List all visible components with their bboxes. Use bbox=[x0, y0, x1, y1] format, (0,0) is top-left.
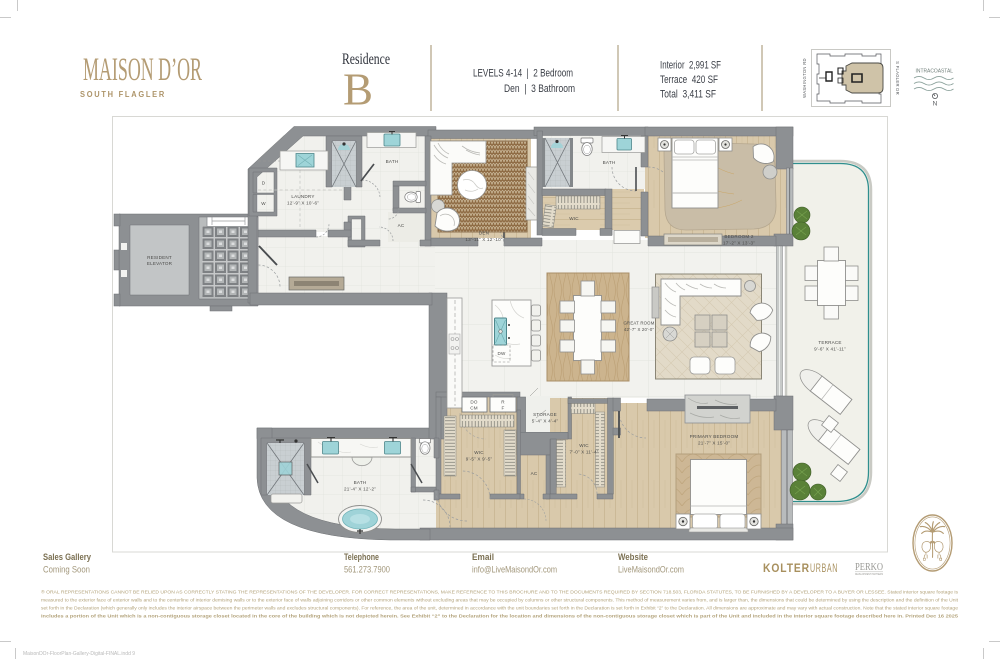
svg-text:DO: DO bbox=[470, 400, 478, 405]
svg-text:Den | 3 Bathroom: Den | 3 Bathroom bbox=[504, 83, 575, 95]
svg-text:Terrace 420 SF: Terrace 420 SF bbox=[660, 74, 718, 86]
svg-text:Interior 2,991 SF: Interior 2,991 SF bbox=[660, 60, 721, 72]
svg-text:LEVELS 4-14 | 2 Bedroom: LEVELS 4-14 | 2 Bedroom bbox=[473, 68, 573, 80]
svg-text:KOLTER: KOLTER bbox=[763, 563, 810, 575]
svg-text:42’-7” X 20’-0”: 42’-7” X 20’-0” bbox=[624, 327, 655, 332]
svg-text:Coming Soon: Coming Soon bbox=[43, 565, 90, 575]
svg-text:PRIMARY BEDROOM: PRIMARY BEDROOM bbox=[690, 434, 739, 439]
svg-text:561.273.7900: 561.273.7900 bbox=[344, 565, 390, 575]
svg-text:Telephone: Telephone bbox=[344, 552, 379, 562]
svg-text:INTRACOASTAL: INTRACOASTAL bbox=[916, 69, 954, 75]
svg-text:TERRACE: TERRACE bbox=[818, 340, 841, 345]
svg-text:12’-9” X 10’-6”: 12’-9” X 10’-6” bbox=[287, 201, 319, 206]
svg-text:N: N bbox=[933, 101, 938, 108]
svg-text:21’-7” X 15’-0”: 21’-7” X 15’-0” bbox=[698, 441, 730, 446]
svg-text:includes a portion of the Unit: includes a portion of the Unit which is … bbox=[41, 614, 958, 619]
svg-text:W: W bbox=[261, 201, 266, 206]
svg-text:DEN: DEN bbox=[479, 231, 489, 236]
svg-text:SOUTH FLAGLER: SOUTH FLAGLER bbox=[80, 89, 166, 99]
svg-text:LiveMaisondOr.com: LiveMaisondOr.com bbox=[618, 565, 684, 575]
svg-text:D: D bbox=[262, 181, 266, 186]
svg-text:AC: AC bbox=[531, 471, 538, 476]
svg-text:URBAN: URBAN bbox=[810, 563, 838, 575]
svg-text:BEDROOM 2: BEDROOM 2 bbox=[724, 234, 754, 239]
svg-text:13’-11” X 12’-10”: 13’-11” X 12’-10” bbox=[465, 237, 503, 242]
svg-text:MaisonDOr-FloorPlan-Gallery-Di: MaisonDOr-FloorPlan-Gallery-Digital-FINA… bbox=[23, 651, 135, 657]
svg-text:Email: Email bbox=[472, 552, 494, 562]
svg-text:Website: Website bbox=[618, 552, 648, 562]
svg-text:RESIDENT: RESIDENT bbox=[147, 255, 172, 260]
svg-text:WIC: WIC bbox=[474, 450, 484, 455]
svg-text:BATH: BATH bbox=[354, 480, 367, 485]
svg-text:STORAGE: STORAGE bbox=[533, 412, 557, 417]
svg-text:® ORAL REPRESENTATIONS CANNOT: ® ORAL REPRESENTATIONS CANNOT BE RELIED … bbox=[41, 589, 959, 595]
svg-text:AC: AC bbox=[398, 223, 405, 228]
svg-text:GREAT ROOM: GREAT ROOM bbox=[624, 321, 655, 326]
svg-text:DW: DW bbox=[497, 351, 506, 356]
svg-text:Total 3,411 SF: Total 3,411 SF bbox=[660, 89, 716, 101]
svg-text:21’-4” X 12’-2”: 21’-4” X 12’-2” bbox=[344, 487, 376, 492]
svg-text:S FLAGLER DR: S FLAGLER DR bbox=[895, 61, 900, 95]
svg-text:ELEVATOR: ELEVATOR bbox=[147, 261, 173, 266]
svg-text:R: R bbox=[501, 400, 505, 405]
svg-text:LAUNDRY: LAUNDRY bbox=[291, 194, 314, 199]
svg-text:BATH: BATH bbox=[603, 160, 616, 165]
svg-text:set forth in the Declaration (: set forth in the Declaration (which gene… bbox=[41, 606, 958, 611]
svg-text:WIC: WIC bbox=[579, 443, 589, 448]
svg-text:WASHINGTON RD: WASHINGTON RD bbox=[802, 58, 807, 98]
svg-text:17’-2” X 13’-3”: 17’-2” X 13’-3” bbox=[723, 241, 755, 246]
svg-text:B: B bbox=[343, 65, 373, 115]
svg-text:9’-5” X 9’-5”: 9’-5” X 9’-5” bbox=[466, 457, 493, 462]
svg-text:BATH: BATH bbox=[386, 159, 399, 164]
svg-text:info@LiveMaisondOr.com: info@LiveMaisondOr.com bbox=[472, 565, 557, 575]
svg-text:PERKO: PERKO bbox=[855, 562, 883, 573]
svg-text:WIC: WIC bbox=[569, 216, 579, 221]
svg-text:CM: CM bbox=[470, 406, 478, 411]
svg-text:7’-0” X 11’-4”: 7’-0” X 11’-4” bbox=[569, 450, 598, 455]
svg-text:5’-4” X 4’-4”: 5’-4” X 4’-4” bbox=[532, 419, 559, 424]
svg-text:9’-6” X 41’-11”: 9’-6” X 41’-11” bbox=[814, 347, 846, 352]
svg-text:DEVELOPMENT PARTNERS: DEVELOPMENT PARTNERS bbox=[855, 573, 883, 576]
svg-text:F: F bbox=[501, 406, 504, 411]
svg-text:MAISON D’OR: MAISON D’OR bbox=[83, 52, 202, 88]
svg-text:measured to the exterior face: measured to the exterior face of exterio… bbox=[41, 598, 959, 603]
svg-text:Sales Gallery: Sales Gallery bbox=[43, 552, 91, 562]
